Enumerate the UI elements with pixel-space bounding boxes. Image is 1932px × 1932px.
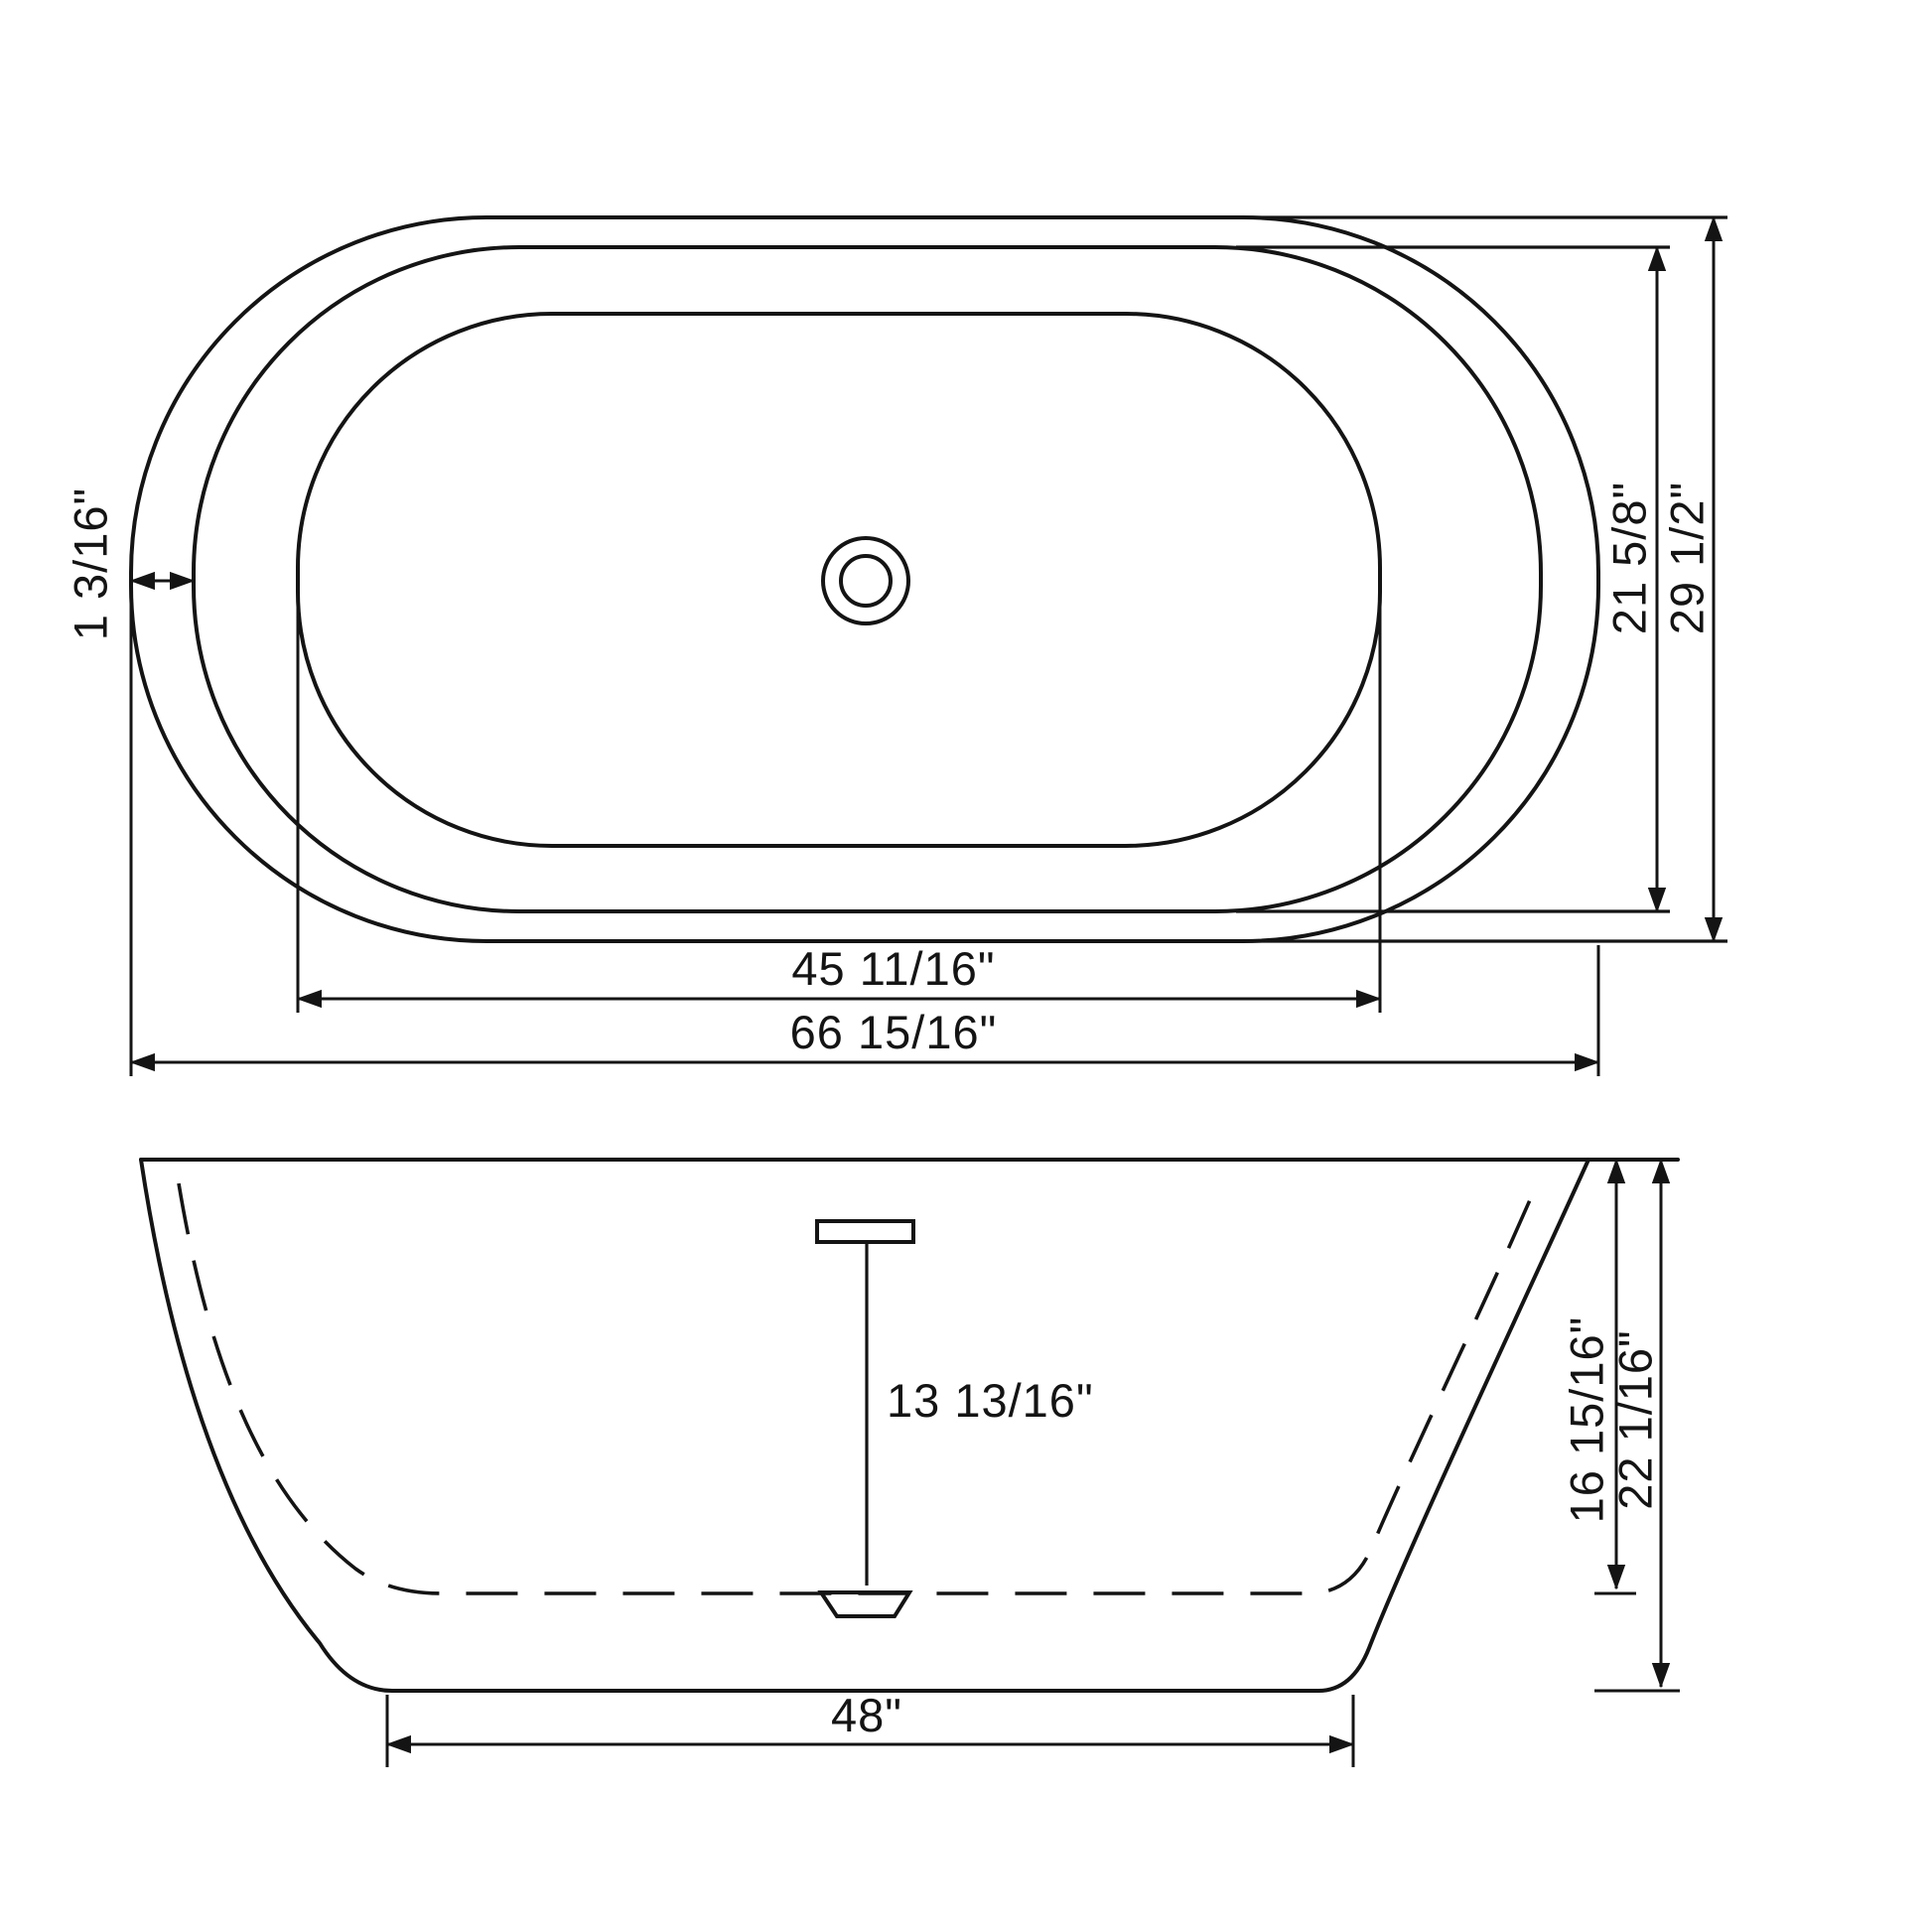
outer-shell-profile [141,1160,1588,1691]
dim-label-rim-width: 1 3/16" [64,487,116,640]
drain-fitting [821,1592,909,1616]
front-view: 13 13/16" 16 15/16" 22 1/16" 48" [141,1160,1680,1767]
dim-label-basin-length: 45 11/16" [791,942,995,995]
dim-label-drain-depth: 13 13/16" [887,1374,1094,1427]
drain-inner-circle [841,556,891,606]
dim-label-overall-width: 29 1/2" [1660,482,1713,634]
dim-label-overall-length: 66 15/16" [790,1006,998,1058]
drain-outer-circle [823,538,908,623]
basin-oval [298,314,1380,846]
drawing-canvas: 1 3/16" 45 11/16" 66 15/16" 21 5/8" 29 1… [0,0,1932,1932]
overflow-pipe-cap [817,1221,913,1242]
bathtub-dimension-drawing: 1 3/16" 45 11/16" 66 15/16" 21 5/8" 29 1… [0,0,1932,1932]
dim-label-interior-depth: 16 15/16" [1560,1316,1612,1524]
top-view: 1 3/16" 45 11/16" 66 15/16" 21 5/8" 29 1… [64,217,1727,1076]
inner-rim-oval [194,247,1541,911]
dim-label-base-length: 48" [831,1689,902,1741]
dim-label-inner-width: 21 5/8" [1602,482,1655,634]
dim-label-overall-height: 22 1/16" [1608,1329,1661,1510]
